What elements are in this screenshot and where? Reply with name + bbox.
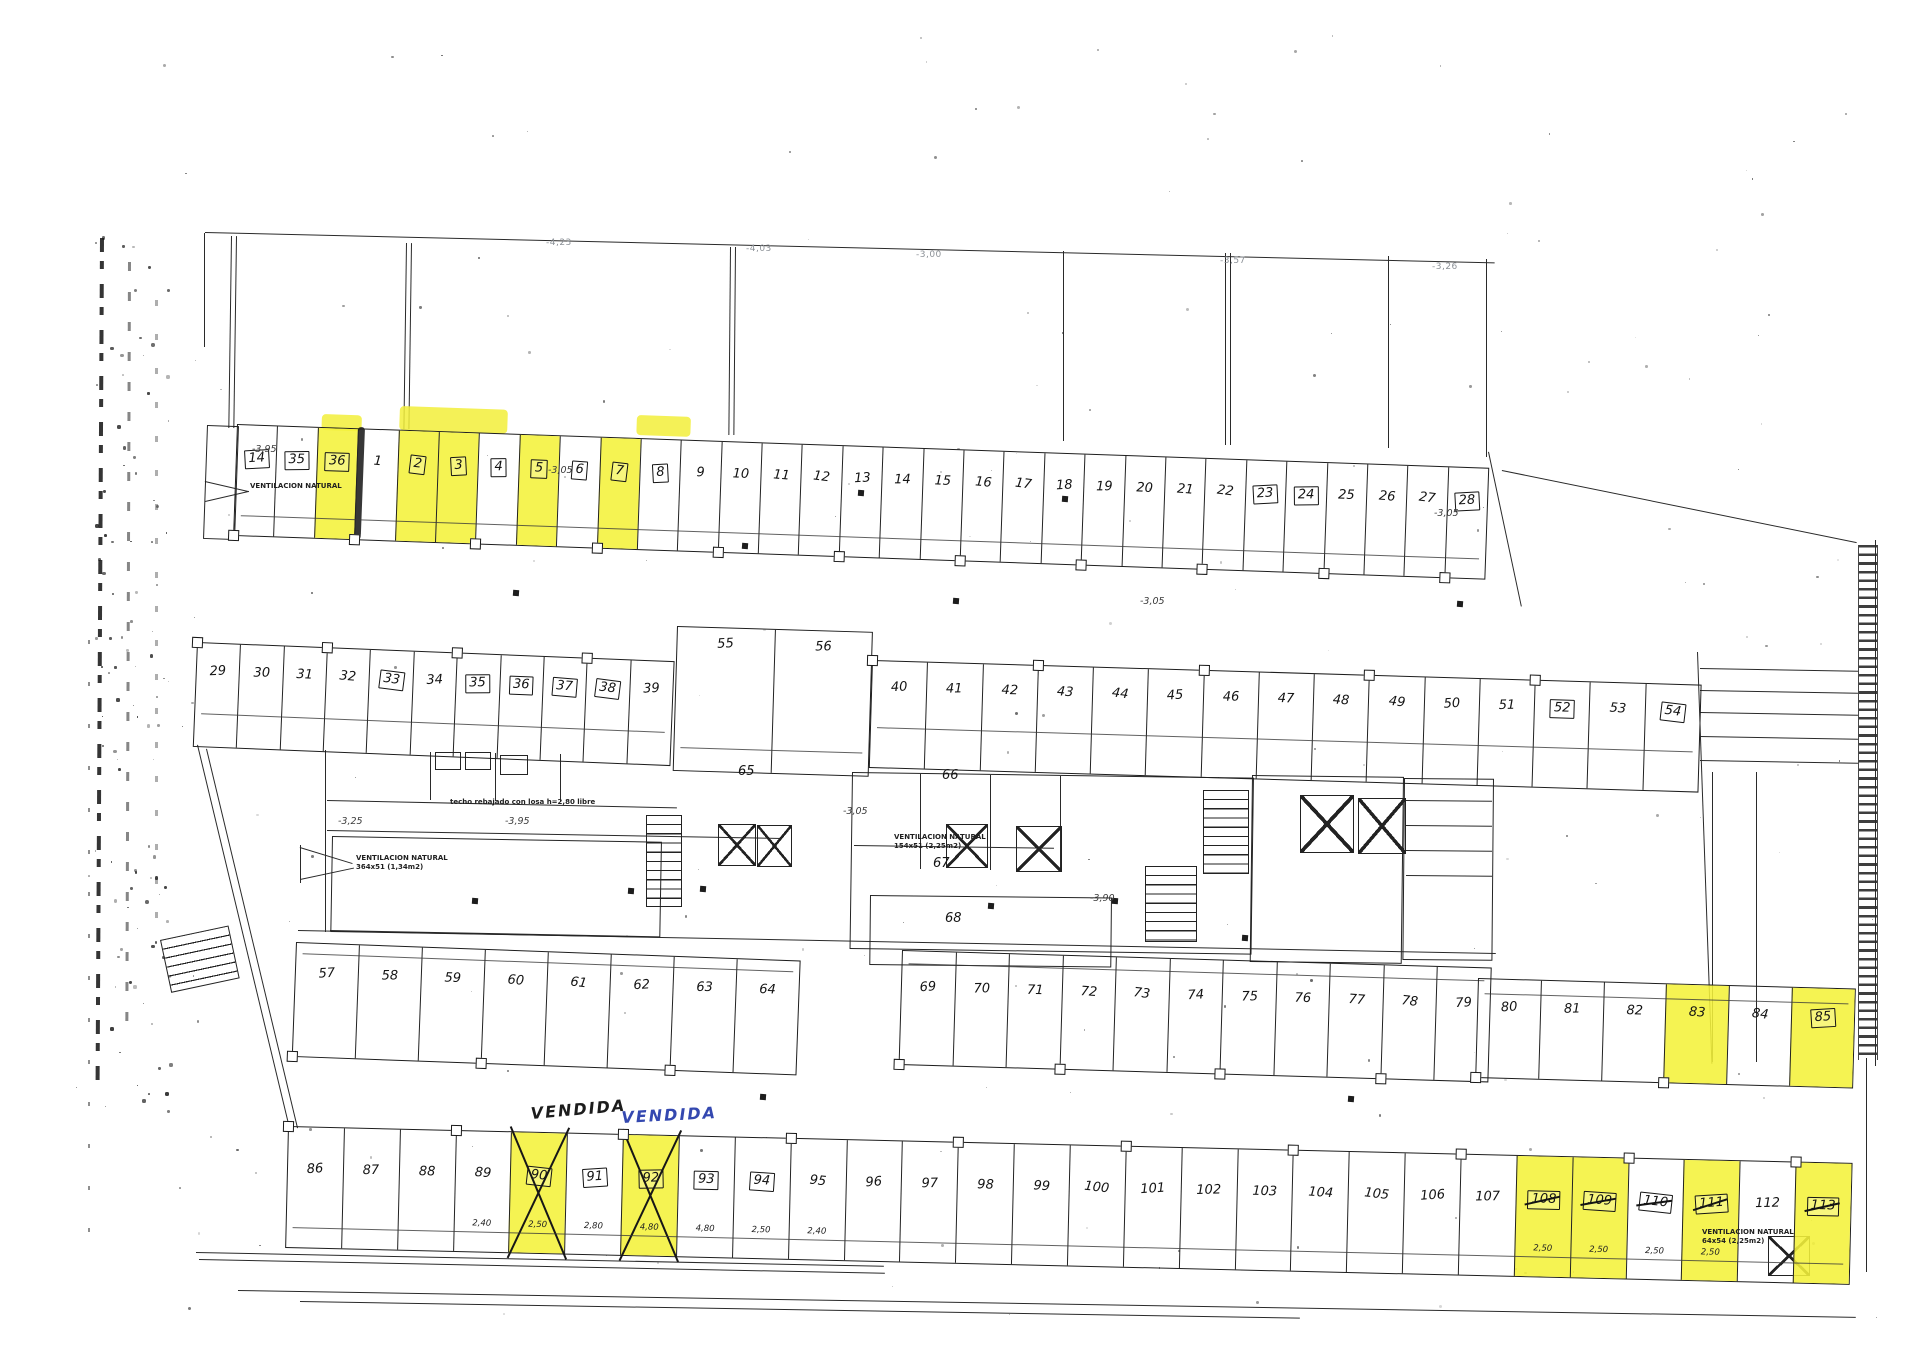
scan-noise-dot	[507, 1070, 510, 1073]
stall-number: 95	[809, 1173, 827, 1190]
scan-noise-dot	[151, 1023, 153, 1025]
scan-noise-dot	[110, 347, 113, 350]
scan-noise-dot	[478, 257, 480, 259]
parking-stall-74: 74	[1166, 959, 1223, 1074]
scan-noise-dot	[256, 814, 259, 817]
scan-noise-dot	[188, 1307, 191, 1310]
parking-stall-35: 35	[453, 653, 500, 758]
scan-noise-dot	[528, 351, 531, 354]
stall-number: 24	[1294, 486, 1319, 505]
scan-noise-dot	[115, 986, 117, 988]
stall-number: 57	[318, 966, 335, 982]
scan-noise-dot	[1746, 636, 1748, 638]
stall-number: 58	[381, 968, 398, 983]
stair-icon	[160, 925, 240, 992]
row-86-113: 868788892,40902,50912,80924,80934,80942,…	[285, 1126, 1852, 1285]
parking-stall-19: 19	[1081, 455, 1125, 566]
stall-number: 104	[1308, 1185, 1334, 1202]
scan-noise-dot	[986, 1087, 987, 1088]
wall-line	[205, 232, 1495, 263]
stall-number: 112	[1755, 1196, 1780, 1211]
elevation-mark: -3,00	[916, 250, 942, 260]
wall-line	[1700, 736, 1858, 740]
stall-number: 23	[1253, 484, 1279, 504]
row-29-39: 2930313233343536373839	[193, 642, 675, 766]
parking-stall-72: 72	[1059, 956, 1116, 1071]
scan-noise-dot	[117, 425, 121, 429]
parking-stall-55: 55	[674, 627, 775, 773]
scan-noise-dot	[1331, 333, 1332, 334]
scanned-floor-plan-page: 1435361234567891011121314151617181920212…	[0, 0, 1920, 1357]
row-80-85: 808182838485	[1475, 978, 1856, 1089]
parking-stall-36: 36	[496, 655, 543, 760]
scan-noise-dot	[167, 1110, 170, 1113]
scan-noise-dot	[220, 389, 222, 391]
scan-noise-dot	[1793, 141, 1794, 142]
parking-stall-44: 44	[1090, 668, 1148, 776]
column-grid-line	[228, 236, 237, 428]
scan-noise-dot	[168, 681, 170, 683]
parking-stall-53: 53	[1587, 682, 1645, 790]
scan-noise-dot	[137, 716, 139, 718]
parking-stall-18: 18	[1040, 453, 1084, 564]
scan-noise-dot	[1332, 35, 1334, 37]
wall-line	[300, 1301, 1300, 1319]
parking-stall-87: 87	[341, 1128, 400, 1249]
stall-number: 19	[1096, 479, 1113, 494]
scan-noise-dot	[76, 1087, 77, 1088]
scan-noise-dot	[920, 37, 923, 40]
scan-noise-dot	[391, 56, 394, 59]
scan-noise-dot	[646, 560, 647, 561]
parking-stall-57: 57	[293, 943, 359, 1058]
stall-number: 61	[570, 974, 588, 991]
scan-noise-dot	[123, 446, 127, 450]
scan-noise-dot	[133, 705, 134, 706]
parking-stall-97: 97	[899, 1141, 958, 1262]
stall-number: 76	[1294, 991, 1311, 1006]
parking-stall-75: 75	[1220, 961, 1277, 1076]
elevator-shaft-icon	[1358, 798, 1406, 854]
scan-noise-dot	[1758, 335, 1759, 336]
scan-noise-dot	[133, 985, 137, 989]
scan-noise-dot	[1668, 528, 1670, 530]
scan-noise-dot	[122, 245, 125, 248]
stall-number: 88	[419, 1164, 436, 1179]
parking-stall-60: 60	[481, 950, 548, 1065]
parking-stall-24: 24	[1283, 462, 1327, 573]
elevator-shaft-icon	[757, 825, 792, 867]
level-label: -3,05	[843, 806, 868, 817]
parking-stall-22: 22	[1202, 459, 1246, 570]
scan-noise-dot	[95, 242, 97, 244]
stall-number: 84	[1751, 1006, 1769, 1023]
parking-stall-102: 102	[1179, 1148, 1238, 1269]
scan-noise-dot	[533, 560, 535, 562]
elevation-mark: -4,23	[546, 238, 572, 248]
scan-noise-dot	[657, 1262, 659, 1264]
stall-number: 6	[571, 460, 589, 480]
scan-noise-dot	[117, 956, 120, 959]
column-marker	[628, 888, 634, 894]
wall-line	[1388, 256, 1389, 448]
scan-noise-dot	[1820, 643, 1822, 645]
stall-number: 80	[1500, 999, 1517, 1015]
scan-noise-dot	[1379, 1114, 1382, 1117]
scan-noise-dot	[145, 900, 149, 904]
stall-number: 4	[490, 458, 506, 477]
scan-noise-dot	[236, 1149, 239, 1152]
scan-noise-dot	[198, 1232, 201, 1235]
parking-stall-107: 107	[1458, 1155, 1517, 1276]
elevator-shaft-icon	[1016, 826, 1062, 872]
parking-stall-63: 63	[670, 957, 737, 1072]
scan-noise-dot	[603, 400, 606, 403]
scan-noise-dot	[197, 1020, 200, 1023]
parking-stall-92: 924,80	[620, 1135, 679, 1256]
scan-noise-dot	[1797, 764, 1799, 766]
stall-number: 18	[1055, 477, 1072, 493]
parking-stall-99: 99	[1011, 1144, 1070, 1265]
scan-noise-dot	[1761, 213, 1764, 216]
stall-number: 99	[1033, 1178, 1051, 1194]
scan-noise-dot	[289, 921, 290, 922]
parking-stall-110: 1102,50	[1625, 1159, 1684, 1280]
stall-number: 101	[1140, 1181, 1166, 1198]
parking-stall-14: 14	[879, 448, 923, 559]
parking-stall-23: 23	[1242, 460, 1286, 571]
scan-noise-dot	[164, 886, 167, 889]
dimension-label: 2,50	[1701, 1247, 1720, 1257]
stall-number: 94	[749, 1171, 775, 1191]
scan-noise-dot	[114, 666, 116, 668]
scan-noise-dot	[150, 654, 154, 658]
stall-number: 109	[1583, 1191, 1617, 1212]
scan-noise-dot	[105, 1106, 106, 1107]
scan-noise-dot	[1765, 645, 1768, 648]
scan-noise-dot	[108, 672, 110, 674]
stall-number: 50	[1443, 696, 1460, 712]
stall-number: 52	[1550, 699, 1575, 719]
parking-stall-46: 46	[1200, 671, 1258, 779]
stall-number: 86	[307, 1161, 324, 1177]
parking-stall-62: 62	[607, 955, 674, 1070]
stall-number: 62	[633, 977, 650, 993]
parking-stall-70: 70	[952, 953, 1009, 1068]
scan-noise-dot	[789, 151, 791, 153]
column-marker	[513, 590, 519, 596]
stall-number: 12	[813, 468, 831, 485]
highlighter-smear	[636, 415, 691, 437]
scan-noise-dot	[355, 777, 356, 778]
stall-number: 97	[921, 1176, 938, 1191]
parking-stall-50: 50	[1421, 677, 1479, 785]
level-label: -3,90	[1090, 893, 1115, 904]
scan-noise-dot	[1097, 49, 1100, 52]
stall-number: 14	[894, 472, 911, 487]
scan-noise-dot	[1469, 385, 1471, 387]
scan-noise-dot	[96, 384, 98, 386]
stall-number: 17	[1014, 476, 1032, 493]
parking-stall-12: 12	[798, 445, 842, 556]
stall-number: 41	[946, 681, 963, 696]
parking-stall-90: 902,50	[509, 1132, 568, 1253]
stall-number: 51	[1499, 698, 1516, 713]
storage-room-number: 65	[738, 764, 755, 779]
dimension-label: 2,40	[472, 1218, 491, 1228]
parking-stall-88: 88	[397, 1130, 456, 1251]
scan-noise-dot	[492, 135, 494, 137]
parking-stall-10: 10	[718, 442, 762, 553]
stall-number: 71	[1027, 983, 1044, 998]
scan-noise-dot	[104, 534, 107, 537]
parking-stall-28: 28	[1444, 467, 1488, 578]
elevation-mark: -3,57	[1220, 256, 1246, 266]
scan-noise-dot	[148, 845, 151, 848]
stall-number: 83	[1689, 1005, 1707, 1021]
parking-stall-104: 104	[1290, 1151, 1349, 1272]
stall-number: 10	[732, 466, 749, 482]
scan-noise-dot	[111, 861, 113, 863]
parking-stall-8: 8	[637, 439, 681, 550]
stall-number: 35	[466, 674, 491, 693]
stall-number: 22	[1216, 483, 1234, 500]
scan-noise-dot	[1761, 423, 1763, 425]
wall-line	[1700, 690, 1858, 694]
stall-number: 31	[296, 667, 313, 683]
wall-line	[495, 753, 496, 801]
scan-streak	[155, 300, 158, 920]
parking-stall-59: 59	[418, 948, 485, 1063]
parking-stall-52: 52	[1532, 681, 1590, 789]
column-grid-line	[728, 247, 736, 435]
scan-noise-dot	[1752, 178, 1753, 179]
stall-number: 38	[594, 678, 621, 700]
stall-number: 25	[1338, 487, 1355, 503]
scan-noise-dot	[1588, 361, 1590, 363]
wall-line	[1700, 760, 1858, 764]
scan-noise-dot	[802, 948, 805, 951]
scan-noise-dot	[165, 1092, 169, 1096]
scan-noise-dot	[419, 306, 421, 308]
parking-stall-7: 7	[596, 438, 640, 549]
stair-icon	[646, 815, 682, 907]
storage-room-number: 68	[945, 911, 962, 926]
column-grid-line	[1225, 253, 1231, 445]
stall-number: 35	[284, 451, 309, 470]
stall-number: 21	[1176, 481, 1194, 497]
scan-noise-dot	[135, 472, 138, 475]
scan-noise-dot	[137, 1085, 138, 1086]
parking-stall-15: 15	[919, 449, 963, 560]
column-marker	[1457, 601, 1463, 607]
stall-number: 29	[209, 663, 226, 679]
stall-number: 91	[582, 1167, 608, 1187]
scan-noise-dot	[1779, 852, 1780, 853]
parking-stall-4: 4	[475, 433, 519, 544]
scan-noise-dot	[698, 869, 700, 871]
wall-line	[300, 845, 301, 883]
stall-number: 26	[1378, 489, 1396, 505]
scan-noise-dot	[1301, 160, 1303, 162]
parking-stall-38: 38	[583, 659, 630, 764]
scan-noise-dot	[1716, 249, 1718, 251]
stall-number: 20	[1136, 480, 1153, 496]
scan-noise-dot	[1235, 589, 1236, 590]
scan-noise-dot	[116, 698, 120, 702]
scan-streak	[96, 238, 104, 1088]
stall-number: 75	[1241, 989, 1258, 1004]
stall-number: 106	[1419, 1187, 1445, 1204]
parking-stall-48: 48	[1311, 674, 1369, 782]
stall-number: 33	[378, 669, 405, 691]
wall-line	[1866, 1058, 1867, 1272]
stall-number: 113	[1807, 1197, 1840, 1217]
parking-stall-76: 76	[1273, 962, 1330, 1077]
stall-number: 36	[325, 452, 350, 472]
parking-stall-33: 33	[366, 650, 413, 755]
scan-noise-dot	[185, 173, 187, 175]
parking-stall-31: 31	[279, 646, 326, 751]
stall-number: 27	[1418, 490, 1436, 507]
stall-number: 105	[1363, 1185, 1389, 1203]
scan-noise-dot	[1509, 202, 1512, 205]
stall-number: 40	[891, 679, 908, 695]
scan-noise-dot	[441, 55, 443, 57]
wall-line	[1488, 452, 1522, 607]
scan-noise-dot	[1746, 170, 1747, 171]
scan-noise-dot	[1538, 240, 1540, 242]
column-marker	[953, 598, 959, 604]
wall-line	[430, 752, 431, 800]
scan-noise-dot	[1027, 312, 1029, 314]
stall-number: 46	[1222, 690, 1239, 705]
scan-noise-dot	[130, 541, 132, 543]
scan-noise-dot	[1109, 622, 1112, 625]
scan-noise-dot	[147, 724, 151, 728]
wall-line	[1502, 470, 1857, 543]
parking-stall-111: 1112,50	[1681, 1160, 1740, 1281]
scan-noise-dot	[179, 1187, 181, 1189]
parking-stall-64: 64	[733, 959, 800, 1074]
stall-number: 107	[1476, 1189, 1501, 1204]
level-label: -3,05	[548, 465, 573, 476]
parking-stall-47: 47	[1256, 672, 1314, 780]
scan-noise-dot	[1017, 106, 1020, 109]
parking-stall-69: 69	[900, 951, 956, 1066]
scan-noise-dot	[148, 266, 151, 269]
stall-number: 16	[974, 474, 992, 490]
parking-stall-86: 86	[286, 1127, 344, 1248]
column-marker	[472, 898, 478, 904]
dimension-label: 2,40	[807, 1226, 826, 1236]
elevator-shaft-icon	[718, 824, 756, 866]
level-label: -3,05	[1434, 508, 1459, 519]
stair-icon	[1203, 790, 1249, 874]
scan-noise-dot	[926, 61, 927, 62]
scan-noise-dot	[259, 1245, 261, 1247]
parking-stall-112: 112	[1737, 1161, 1796, 1282]
parking-stall-103: 103	[1234, 1149, 1293, 1270]
dimension-label: 2,50	[528, 1220, 547, 1230]
stall-number: 110	[1638, 1191, 1673, 1213]
stall-number: 49	[1387, 694, 1405, 711]
parking-stall-45: 45	[1145, 669, 1203, 777]
scan-noise-dot	[527, 131, 529, 133]
parking-stall-30: 30	[236, 645, 283, 750]
scan-noise-dot	[150, 877, 152, 879]
stall-number: 108	[1527, 1190, 1560, 1210]
scan-noise-dot	[194, 617, 196, 619]
parking-stall-9: 9	[677, 441, 721, 552]
elevation-mark: -3,26	[1432, 262, 1458, 272]
parking-stall-11: 11	[758, 443, 802, 554]
dimension-label: 2,50	[1589, 1245, 1608, 1255]
stall-number: 15	[934, 473, 951, 489]
row-69-79: 6970717273747576777879	[899, 950, 1492, 1082]
scan-noise-dot	[135, 591, 138, 594]
ventilation-annotation: VENTILACION NATURAL 154x51 (2,25m2)	[894, 833, 986, 851]
stall-number: 47	[1278, 691, 1295, 706]
scan-noise-dot	[147, 392, 150, 395]
scan-noise-dot	[1839, 760, 1841, 762]
parking-stall-39: 39	[626, 660, 673, 765]
scan-noise-dot	[1207, 138, 1209, 140]
scan-noise-dot	[934, 156, 937, 159]
stall-number: 87	[363, 1163, 380, 1178]
stall-number: 1	[373, 454, 382, 470]
scan-noise-dot	[119, 1052, 121, 1054]
stall-number: 48	[1332, 692, 1350, 708]
stall-number: 100	[1084, 1179, 1110, 1197]
scan-noise-dot	[1507, 233, 1509, 235]
stall-number: 2	[409, 454, 427, 475]
parking-stall-14: 14	[234, 425, 277, 536]
ventilation-annotation: VENTILACION NATURAL 364x51 (1,34m2)	[356, 854, 448, 872]
parking-stall-40: 40	[870, 661, 927, 769]
scan-noise-dot	[864, 955, 865, 956]
scan-noise-dot	[1703, 583, 1705, 585]
stall-number: 37	[552, 677, 578, 698]
parking-stall-16: 16	[960, 450, 1004, 561]
stall-number: 39	[643, 681, 660, 697]
stall-number: 42	[1001, 683, 1018, 698]
stall-number: 72	[1080, 984, 1098, 1000]
scan-noise-dot	[1313, 374, 1316, 377]
scan-noise-dot	[134, 289, 137, 292]
stall-number: 9	[696, 465, 704, 480]
scan-noise-dot	[132, 246, 135, 249]
wall-line	[199, 1259, 885, 1274]
parking-stall-26: 26	[1363, 464, 1407, 575]
parking-stall-37: 37	[539, 657, 586, 762]
parking-stall-94: 942,50	[732, 1138, 791, 1259]
scan-noise-dot	[1213, 113, 1216, 116]
scan-noise-dot	[143, 1003, 144, 1004]
column-marker	[1348, 1096, 1354, 1102]
scan-noise-dot	[191, 702, 194, 705]
column-grid-line	[403, 243, 412, 429]
scan-noise-dot	[685, 915, 688, 918]
parking-stall-6: 6	[556, 436, 600, 547]
scan-noise-dot	[167, 289, 170, 292]
level-label: -3,05	[1140, 596, 1165, 607]
stall-number: 3	[450, 456, 467, 476]
parking-stall-58: 58	[355, 945, 422, 1060]
scan-noise-dot	[143, 355, 144, 356]
parking-stall-91: 912,80	[564, 1134, 623, 1255]
parking-stall-51: 51	[1476, 679, 1534, 787]
